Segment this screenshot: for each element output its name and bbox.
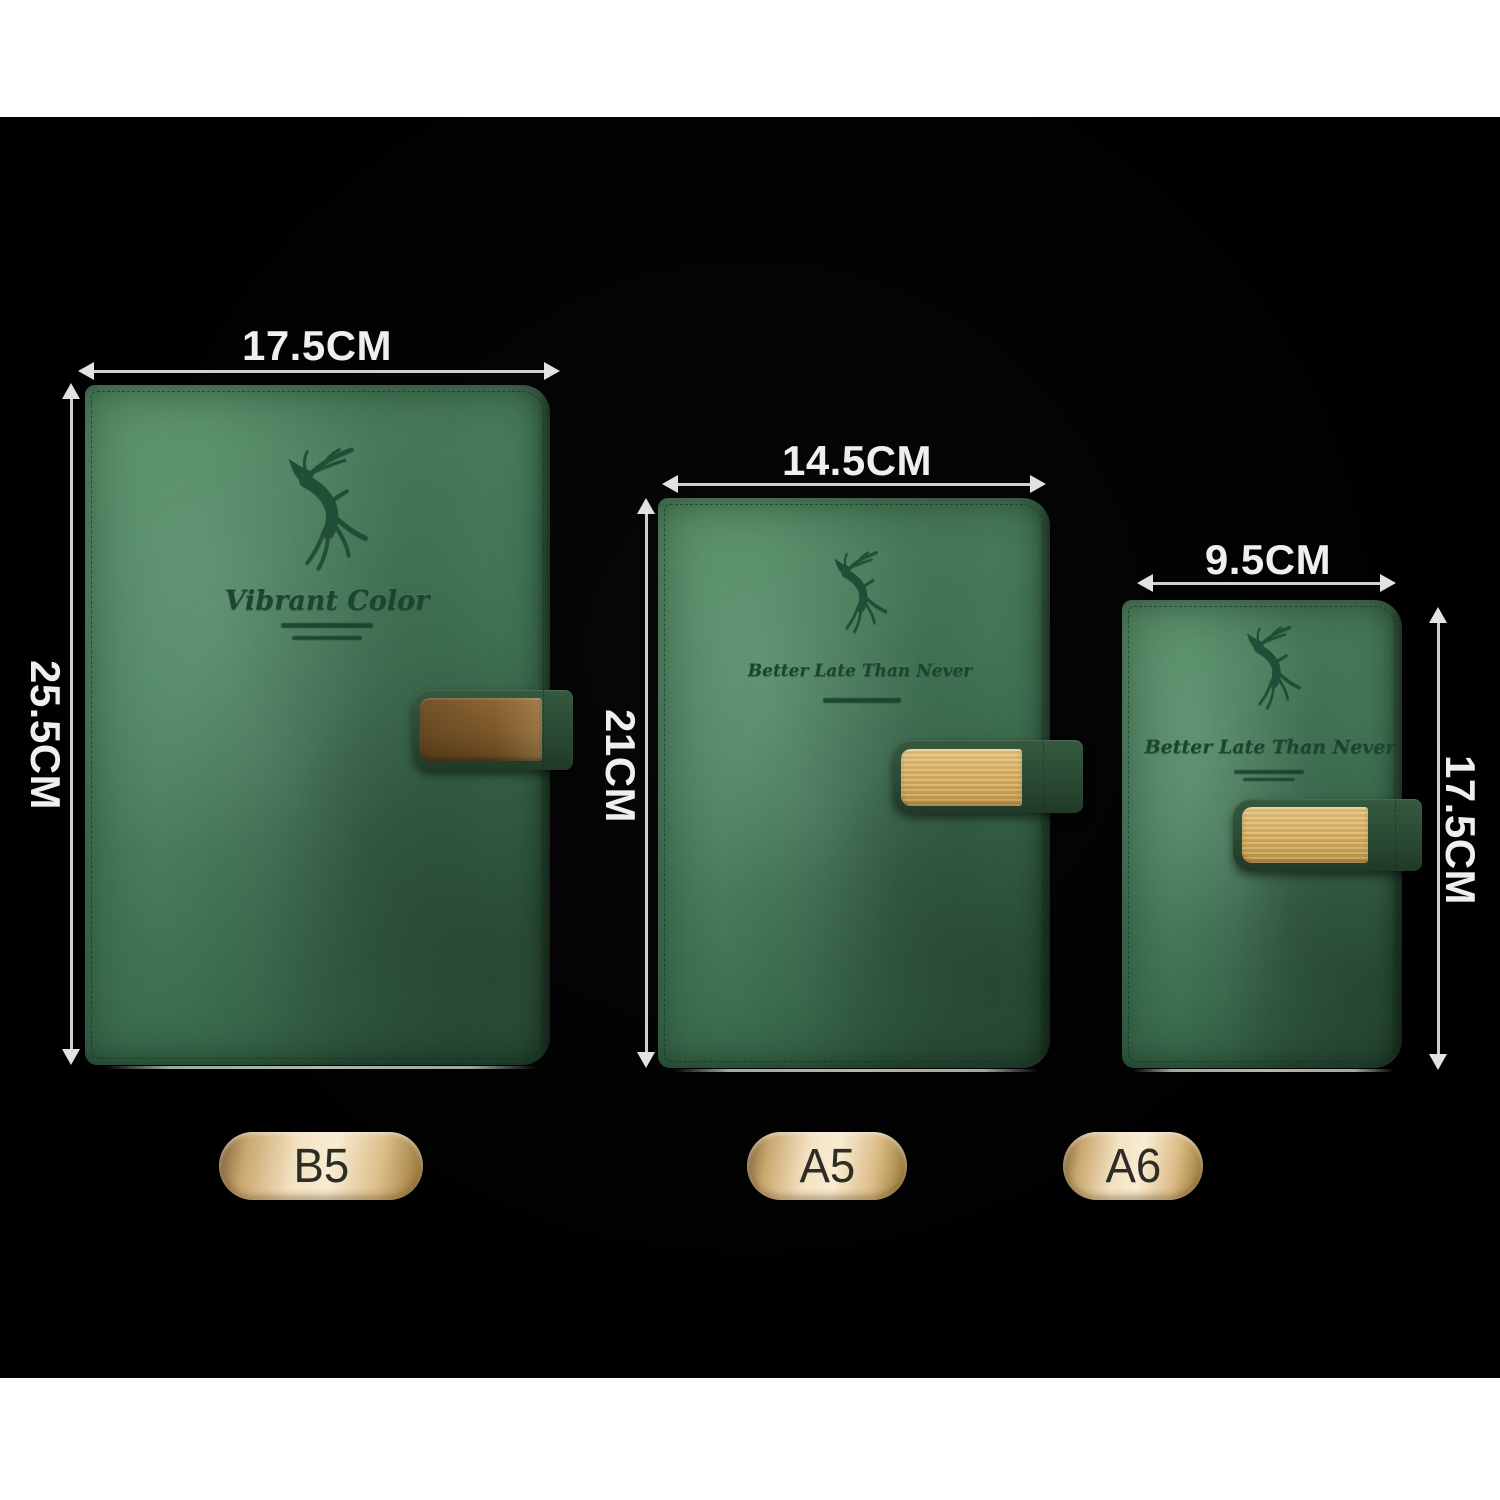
arrowhead-up-icon: [62, 383, 80, 399]
deer-logo-icon: [272, 443, 382, 575]
size-badge-b5: B5: [219, 1132, 423, 1200]
dimension-line: [1147, 582, 1386, 585]
dimension-height-a6: 17.5CM: [1436, 755, 1484, 905]
deer-logo-icon: [828, 548, 892, 636]
dimension-line: [672, 483, 1036, 486]
arrowhead-left-icon: [78, 362, 94, 380]
dimension-height-b5: 25.5CM: [21, 660, 69, 810]
arrowhead-up-icon: [637, 498, 655, 514]
dimension-line: [1437, 619, 1440, 1056]
size-badge-a5: A5: [747, 1132, 907, 1200]
arrowhead-down-icon: [1429, 1054, 1447, 1070]
deer-logo-icon: [1241, 620, 1305, 715]
arrowhead-up-icon: [1429, 607, 1447, 623]
arrowhead-down-icon: [637, 1052, 655, 1068]
dimension-width-a6: 9.5CM: [1205, 536, 1331, 584]
engraved-tagline-line: [1243, 778, 1295, 781]
arrowhead-down-icon: [62, 1049, 80, 1065]
size-badge-label: A5: [799, 1139, 855, 1194]
arrowhead-left-icon: [662, 475, 678, 493]
size-badge-label: B5: [293, 1139, 349, 1194]
size-badge-label: A6: [1105, 1139, 1161, 1194]
clasp-plate: [1242, 807, 1368, 863]
dimension-line: [645, 510, 648, 1056]
dimension-width-b5: 17.5CM: [242, 322, 392, 370]
clasp-strap: [893, 740, 1083, 813]
engraved-tagline-line: [1234, 770, 1304, 774]
dimension-line: [88, 370, 550, 373]
engraved-tagline-line: [823, 698, 901, 703]
clasp-plate: [420, 698, 542, 761]
size-badge-a6: A6: [1063, 1132, 1203, 1200]
arrowhead-right-icon: [544, 362, 560, 380]
dimension-height-a5: 21CM: [596, 709, 644, 823]
arrowhead-left-icon: [1137, 574, 1153, 592]
notebook-a5: Better Late Than Never: [658, 498, 1050, 1068]
dimension-width-a5: 14.5CM: [782, 437, 932, 485]
dimension-line: [70, 395, 73, 1051]
engraved-tagline-line: [281, 623, 373, 628]
product-size-comparison-image: Vibrant Color 17.5CM 25.5CM Better Late …: [0, 0, 1500, 1500]
cover-script-text: Better Late Than Never: [748, 661, 972, 681]
cover-script-text: Better Late Than Never: [1145, 736, 1396, 758]
clasp-plate: [901, 749, 1022, 806]
clasp-strap: [1233, 799, 1422, 871]
arrowhead-right-icon: [1380, 574, 1396, 592]
engraved-tagline-line: [292, 636, 362, 640]
notebook-a6: Better Late Than Never: [1122, 600, 1402, 1068]
arrowhead-right-icon: [1030, 475, 1046, 493]
clasp-strap: [413, 690, 573, 770]
notebook-b5: Vibrant Color: [85, 385, 550, 1065]
cover-script-text: Vibrant Color: [225, 586, 430, 617]
